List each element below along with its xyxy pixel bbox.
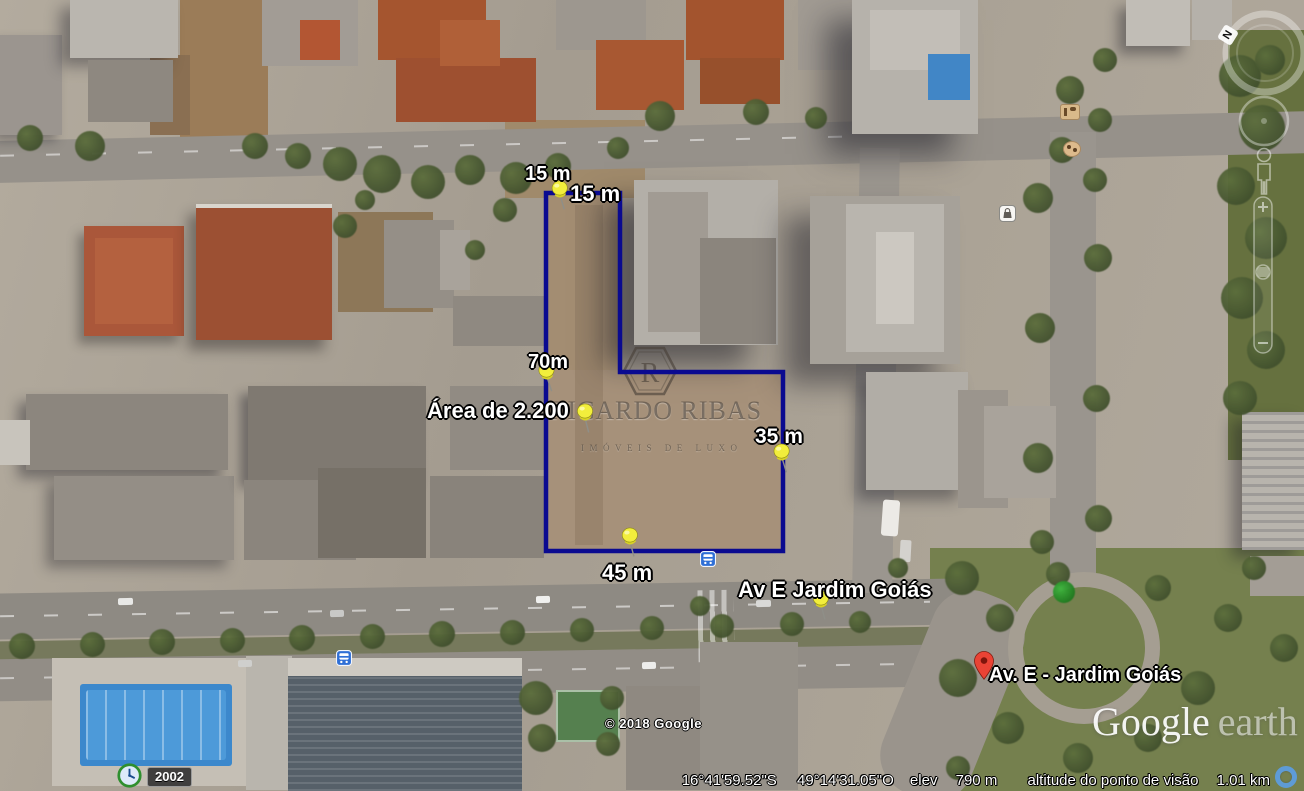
label-measure-bottom: 45 m (602, 560, 652, 586)
tree (355, 190, 375, 210)
tree (1085, 505, 1112, 532)
logo-google: Google (1092, 699, 1210, 744)
terrain-shape (648, 192, 708, 332)
terrain-shape (596, 40, 684, 110)
terrain-shape (95, 238, 173, 324)
tree (17, 125, 43, 151)
google-earth-viewport: R RICARDO RIBAS IMÓVEIS DE LUXO (0, 0, 1304, 791)
terrain-shape (300, 20, 340, 60)
zoom-slider-handle (1257, 267, 1269, 277)
tree (360, 624, 385, 649)
tree (285, 143, 311, 169)
terrain-shape (536, 596, 550, 603)
tree (1145, 575, 1171, 601)
terrain-shape (642, 662, 656, 669)
pushpin-measure-bottom-icon[interactable] (618, 526, 644, 559)
terrain-shape (0, 420, 30, 465)
terrain-shape (330, 610, 344, 617)
terrain-shape (866, 372, 968, 490)
status-bar: 16°41'59.52"S 49°14'31.05"O elev 790 m a… (682, 772, 1270, 789)
tree (596, 732, 620, 756)
tree (1088, 108, 1112, 132)
label-measure-right: 35 m (755, 425, 803, 449)
tree (1056, 76, 1084, 104)
tree (9, 633, 35, 659)
tree (1214, 604, 1242, 632)
timeline-year-badge[interactable]: 2002 (147, 767, 192, 787)
terrain-shape (118, 598, 133, 605)
copyright-text: © 2018 Google (605, 716, 702, 731)
tree (710, 614, 734, 638)
terrain-shape (686, 0, 784, 60)
tree (1093, 48, 1117, 72)
watermark-tagline-text: IMÓVEIS DE LUXO (581, 443, 743, 453)
shopping-poi-icon[interactable] (999, 205, 1016, 222)
label-measure-top-outer: 15 m (525, 163, 571, 186)
status-elev-value: 790 m (956, 772, 998, 789)
compass-ring[interactable] (1218, 6, 1304, 100)
tree (645, 101, 675, 131)
status-longitude: 49°14'31.05"O (797, 772, 894, 789)
terrain-shape (430, 476, 544, 558)
status-eye-alt-value: 1.01 km (1217, 772, 1270, 789)
terrain-shape (440, 230, 470, 290)
tree (1223, 381, 1257, 415)
tree (1023, 183, 1053, 213)
terrain-shape (196, 204, 332, 340)
tree (289, 625, 315, 651)
label-placemark: Av. E - Jardim Goiás (989, 664, 1181, 687)
tree (570, 618, 594, 642)
tree (500, 620, 525, 645)
status-eye-alt-label: altitude do ponto de visão (1028, 772, 1199, 789)
label-measure-left: 70m (528, 351, 568, 374)
terrain-shape (26, 394, 228, 470)
tree (849, 611, 871, 633)
tree (743, 99, 769, 125)
tree (640, 616, 664, 640)
terrain-shape (238, 660, 252, 667)
terrain-shape (318, 468, 426, 558)
tree (323, 147, 357, 181)
tree (939, 659, 977, 697)
tree (1084, 244, 1112, 272)
terrain-shape (86, 690, 226, 760)
terrain-shape (798, 0, 854, 70)
tree (986, 604, 1014, 632)
tree (1083, 385, 1110, 412)
terrain-shape (0, 35, 62, 135)
terrain-shape (700, 58, 780, 104)
google-earth-logo: Googleearth (1092, 698, 1298, 745)
terrain-shape (288, 658, 522, 678)
map-poi-icon (1063, 141, 1081, 157)
tree (945, 561, 979, 595)
streaming-indicator-icon (1275, 766, 1297, 788)
pushpin-area-icon[interactable] (573, 402, 598, 435)
terrain-shape (88, 60, 173, 122)
tree (805, 107, 827, 129)
terrain-shape (70, 0, 178, 58)
tree (493, 198, 517, 222)
tree (1270, 634, 1298, 662)
terrain-shape (54, 476, 234, 560)
logo-letter: R (641, 358, 660, 389)
label-area: Área de 2.200 (427, 398, 569, 424)
terrain-shape (288, 676, 522, 791)
terrain-shape (928, 54, 970, 100)
status-latitude: 16°41'59.52"S (682, 772, 777, 789)
tree (149, 629, 175, 655)
terrain-shape (700, 642, 798, 790)
tree (1053, 581, 1075, 603)
terrain-shape (700, 238, 776, 344)
historical-imagery-clock-icon[interactable] (117, 763, 142, 788)
look-joystick[interactable] (1237, 94, 1291, 148)
tree (780, 612, 804, 636)
terrain-shape (1242, 412, 1304, 550)
tree (465, 240, 485, 260)
tree (455, 155, 485, 185)
tree (333, 214, 357, 238)
tree (411, 165, 445, 199)
tree (607, 137, 629, 159)
terrain-shape (248, 386, 426, 480)
tree (1063, 743, 1093, 773)
terrain-shape (440, 20, 500, 66)
ricardo-ribas-logo-icon: R (622, 346, 678, 396)
tree (1023, 443, 1053, 473)
tree (75, 131, 105, 161)
tree (528, 724, 556, 752)
tree (600, 686, 624, 710)
terrain-shape (180, 0, 268, 138)
tree (992, 712, 1024, 744)
label-measure-top-inner: 15 m (570, 181, 620, 207)
terrain-shape (1126, 0, 1190, 46)
tree (1030, 530, 1054, 554)
tree (1025, 313, 1055, 343)
terrain-shape (246, 656, 292, 790)
label-street: Av E Jardim Goiás (738, 577, 932, 603)
status-elev-label: elev (910, 772, 938, 789)
pegman-icon[interactable] (1250, 146, 1278, 198)
terrain-shape (396, 58, 536, 122)
tree (220, 628, 245, 653)
tree (1083, 168, 1107, 192)
tree (519, 681, 553, 715)
tree (1242, 556, 1266, 580)
tree (429, 621, 455, 647)
tree (242, 133, 268, 159)
terrain-shape (453, 296, 547, 346)
tree (888, 558, 908, 578)
tree (690, 596, 710, 616)
terrain-shape (881, 499, 900, 536)
zoom-slider[interactable] (1251, 194, 1275, 356)
bus-stop-icon[interactable] (700, 551, 716, 567)
logo-earth: earth (1218, 699, 1298, 744)
map-poi-icon (1060, 104, 1080, 120)
terrain-shape (876, 232, 914, 324)
tree (80, 632, 105, 657)
terrain-shape (575, 205, 603, 545)
bus-stop-icon[interactable] (336, 650, 352, 666)
tree (363, 155, 401, 193)
